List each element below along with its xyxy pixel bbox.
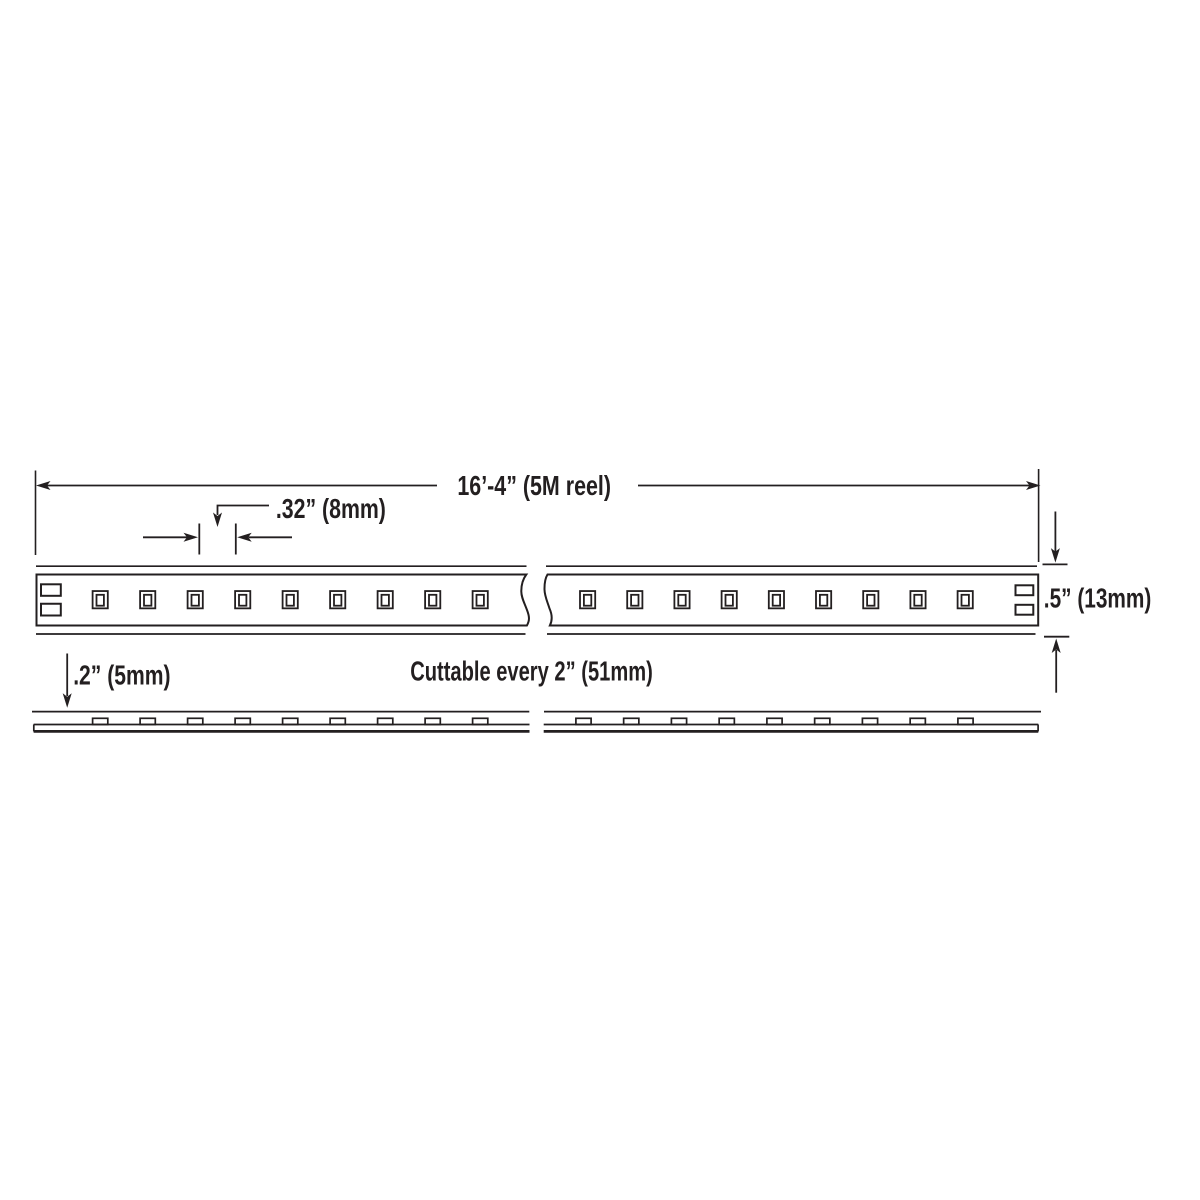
svg-text:.32” (8mm): .32” (8mm) [276, 493, 386, 524]
svg-text:.5” (13mm): .5” (13mm) [1044, 583, 1152, 614]
svg-text:16’-4” (5M reel): 16’-4” (5M reel) [457, 470, 611, 501]
svg-text:.2” (5mm): .2” (5mm) [73, 659, 170, 690]
svg-text:Cuttable every 2” (51mm): Cuttable every 2” (51mm) [410, 655, 653, 686]
